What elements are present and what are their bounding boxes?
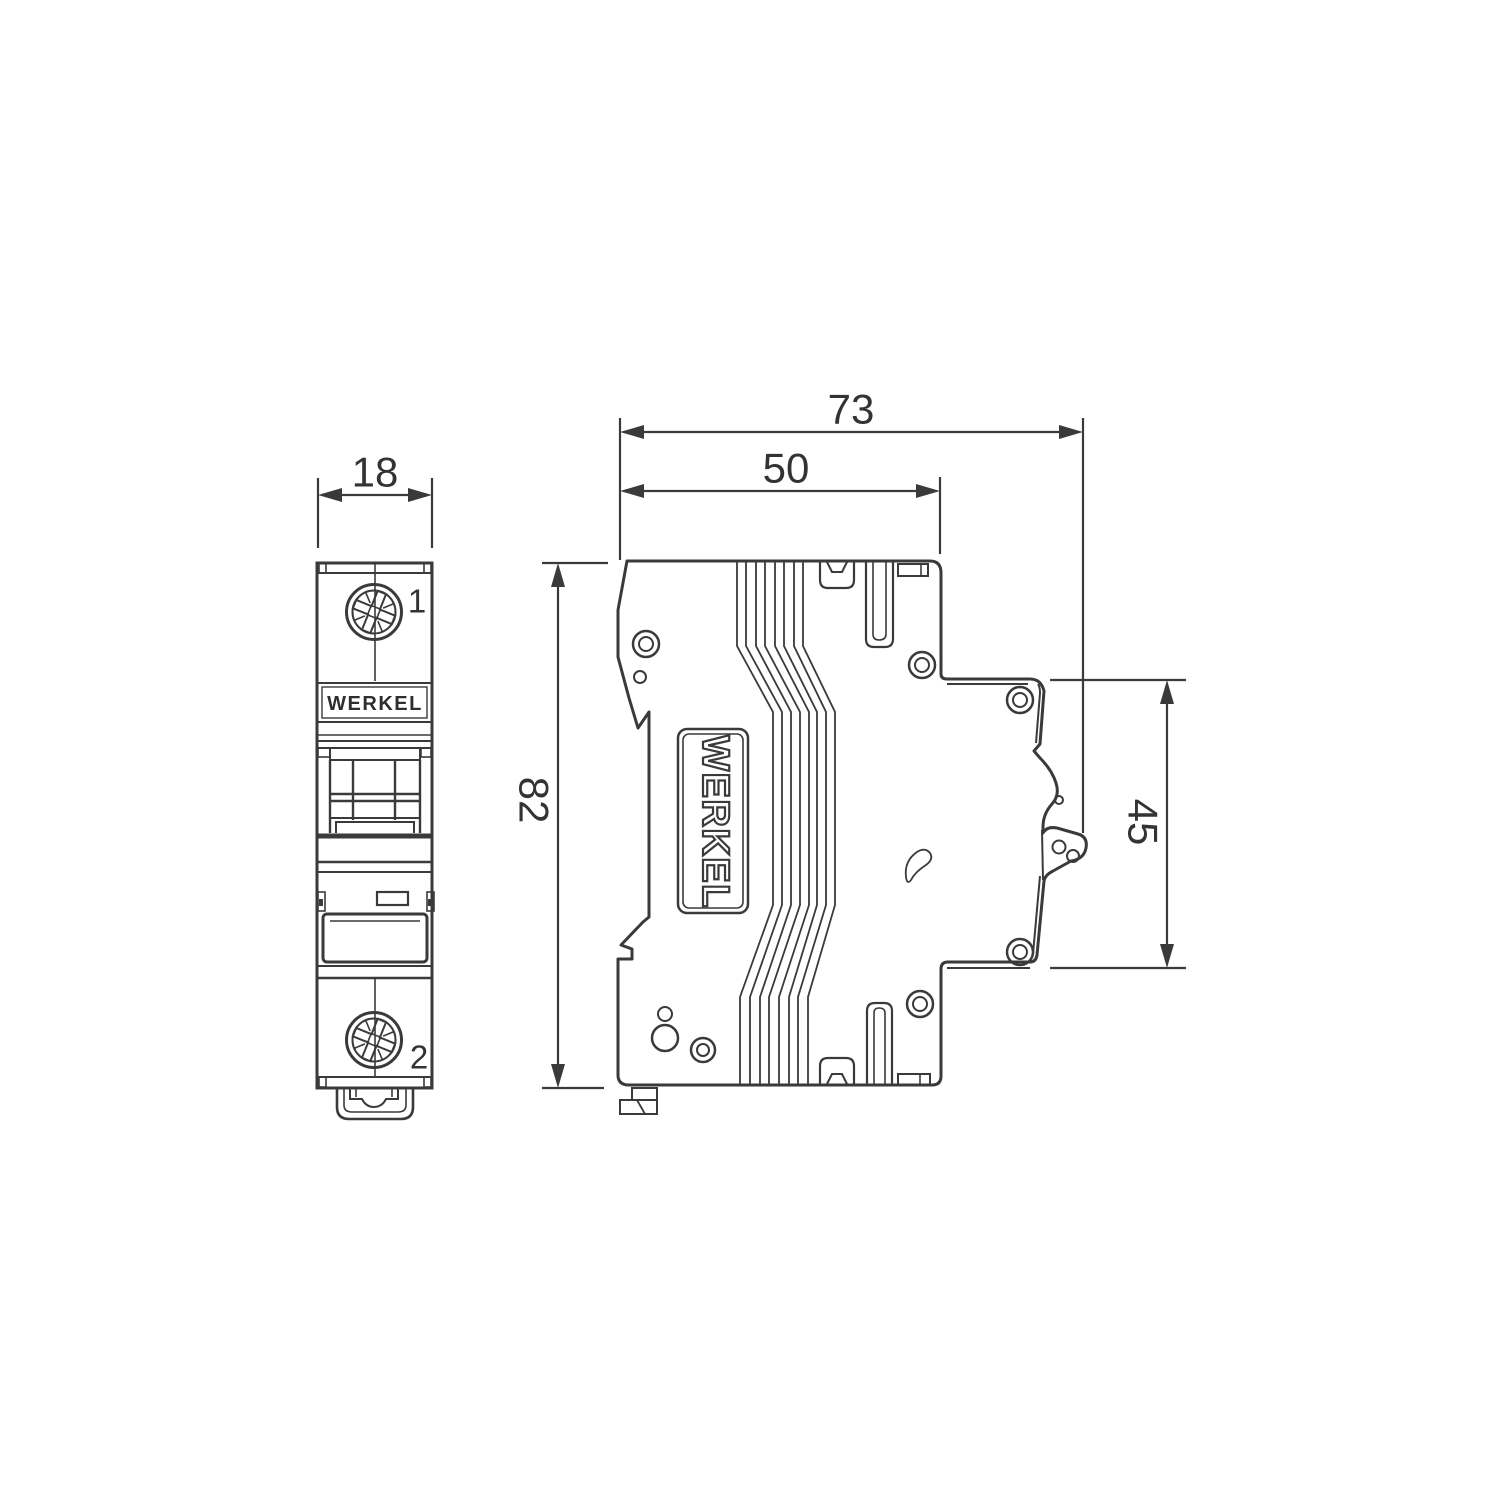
side-brand-plate: WERKEL bbox=[678, 729, 748, 913]
rivet-pin bbox=[633, 631, 659, 657]
front-view: 18 1 WERKEL bbox=[317, 449, 434, 1120]
front-width-dimension: 18 bbox=[318, 449, 432, 549]
rivet-pin bbox=[909, 652, 935, 678]
technical-drawing-page: 18 1 WERKEL bbox=[0, 0, 1500, 1500]
circuit-breaker-dimension-drawing: 18 1 WERKEL bbox=[0, 0, 1500, 1500]
front-bottom-guard bbox=[337, 1088, 413, 1119]
pozidriv-screw-icon bbox=[347, 585, 402, 640]
dimension-value-50: 50 bbox=[763, 445, 810, 492]
side-brand-label: WERKEL bbox=[694, 735, 736, 909]
case-seam-lines bbox=[737, 562, 835, 1084]
dimension-value-18: 18 bbox=[352, 449, 399, 496]
dimension-value-73: 73 bbox=[828, 386, 875, 433]
indicator-window bbox=[377, 892, 408, 905]
indicator-arc bbox=[906, 850, 932, 882]
arrowhead-down bbox=[551, 1064, 565, 1088]
arrowhead-up bbox=[1160, 680, 1174, 704]
rivet-pins bbox=[633, 631, 1033, 1062]
screw-terminal-2: 2 bbox=[347, 1013, 429, 1076]
side-view: 73 50 82 45 bbox=[511, 386, 1187, 1115]
side-body-depth-dimension: 50 bbox=[620, 445, 940, 555]
rivet-pin bbox=[1007, 687, 1033, 713]
rivet-pin bbox=[691, 1038, 715, 1062]
bottom-right-notch bbox=[424, 1077, 431, 1087]
rivet-pin bbox=[907, 991, 933, 1017]
front-brand-label: WERKEL bbox=[327, 693, 423, 715]
clip-notch-bottom bbox=[820, 1058, 854, 1084]
dimension-value-82: 82 bbox=[511, 777, 558, 824]
terminal-1-label: 1 bbox=[408, 583, 426, 620]
arrowhead-right bbox=[408, 488, 432, 502]
arrowhead-down bbox=[1160, 944, 1174, 968]
vent-slot-top bbox=[866, 562, 893, 647]
side-inner-height-dimension: 45 bbox=[1050, 680, 1186, 968]
front-brand-band: WERKEL bbox=[317, 683, 432, 722]
arrowhead-right bbox=[916, 484, 940, 498]
arrowhead-left bbox=[620, 484, 644, 498]
top-edge-features bbox=[820, 562, 928, 647]
terminal-2-label: 2 bbox=[410, 1039, 428, 1076]
side-body bbox=[618, 561, 1086, 1085]
screw-terminal-1: 1 bbox=[347, 583, 427, 640]
clip-notch-top bbox=[820, 562, 854, 588]
lever-pin bbox=[1053, 841, 1066, 854]
din-clip-tab bbox=[620, 1088, 657, 1114]
arrowhead-left bbox=[620, 425, 644, 439]
arrowhead-left bbox=[318, 488, 342, 502]
side-overall-depth-dimension: 73 bbox=[620, 386, 1083, 834]
arrowhead-up bbox=[551, 563, 565, 587]
front-mechanism bbox=[317, 735, 434, 978]
arrowhead-right bbox=[1059, 425, 1083, 439]
vent-slot-bottom bbox=[867, 1003, 892, 1084]
pozidriv-screw-icon bbox=[347, 1013, 402, 1068]
bottom-left-notch bbox=[319, 1077, 326, 1087]
dimension-value-45: 45 bbox=[1120, 799, 1167, 846]
side-height-dimension: 82 bbox=[511, 563, 609, 1088]
side-body-outline bbox=[618, 561, 1086, 1085]
